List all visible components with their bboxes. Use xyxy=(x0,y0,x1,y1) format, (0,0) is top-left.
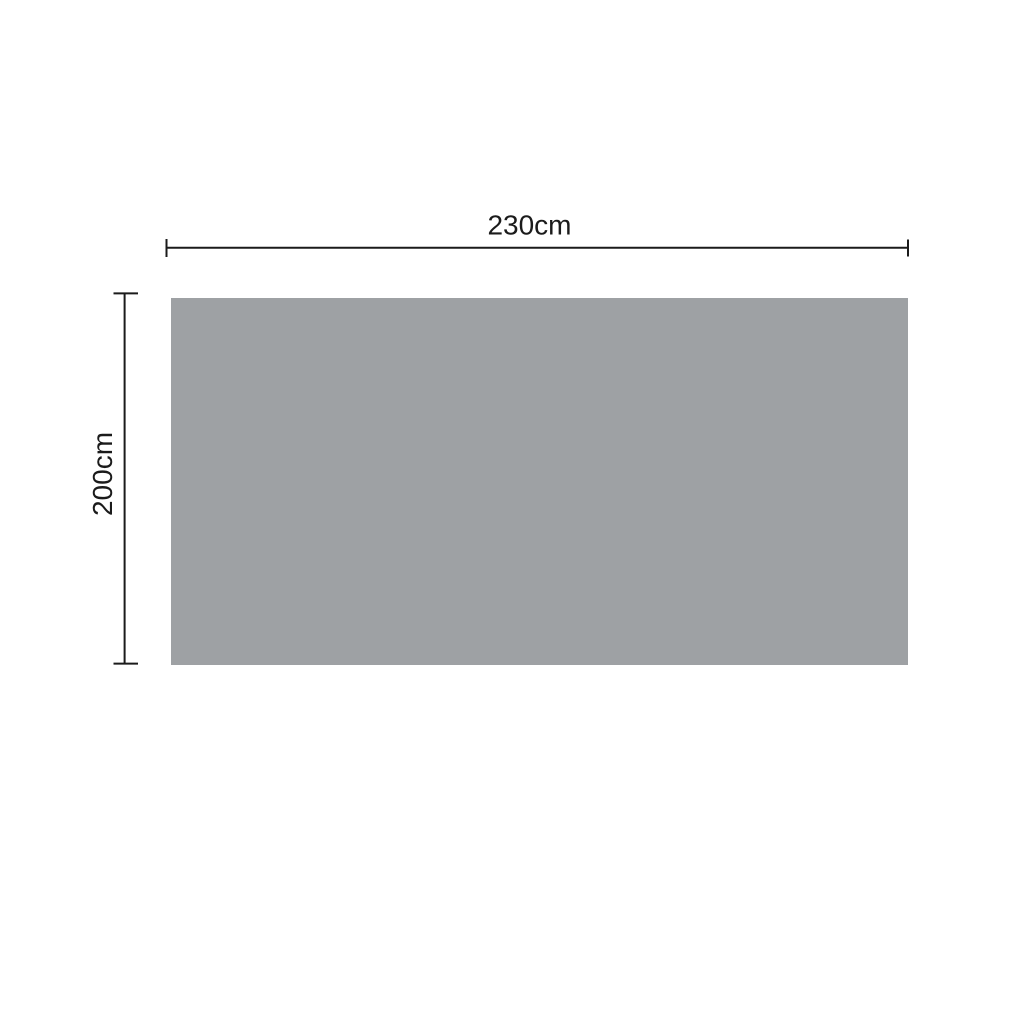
svg-text:230cm: 230cm xyxy=(487,210,571,241)
svg-text:200cm: 200cm xyxy=(87,432,118,516)
